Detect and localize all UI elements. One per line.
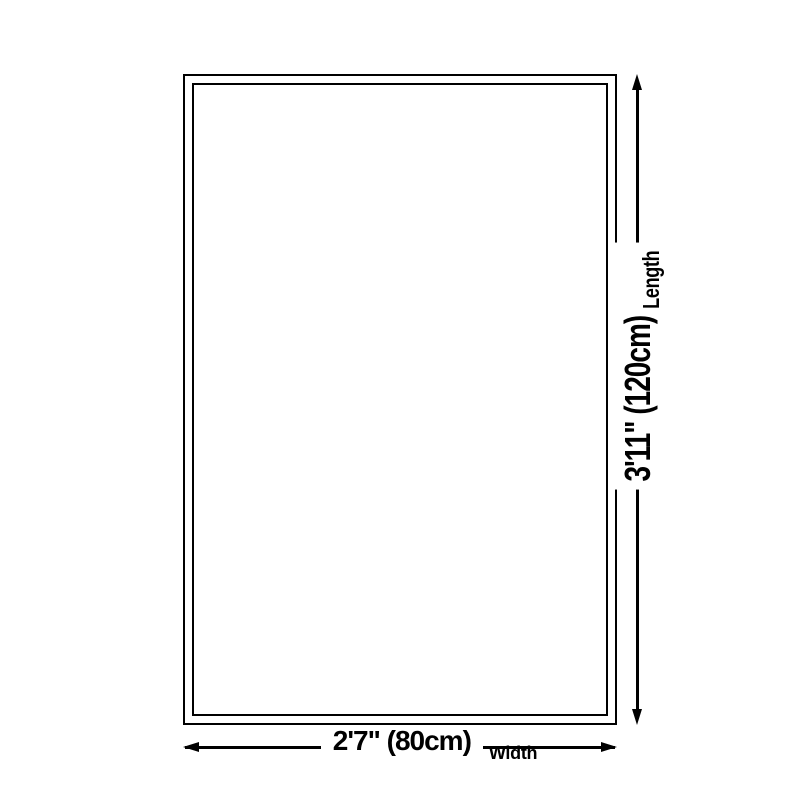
length-unit-text: Length: [638, 251, 665, 309]
length-label: 3'11" (120cm) Length: [611, 243, 665, 490]
arrow-down-icon: [632, 709, 642, 725]
rug-outline-inner: [192, 83, 608, 716]
arrow-left-icon: [183, 742, 199, 752]
arrow-up-icon: [632, 74, 642, 90]
rug-outline-outer: [183, 74, 617, 725]
width-dimension-text: 2'7" (80cm): [321, 725, 483, 757]
size-diagram: 3'11" (120cm) Length 2'7" (80cm) Width: [0, 0, 800, 800]
width-unit-text: Width: [489, 743, 537, 764]
arrow-right-icon: [601, 742, 617, 752]
length-dimension-text: 3'11" (120cm): [617, 316, 658, 482]
width-label: 2'7" (80cm) Width: [321, 725, 537, 757]
